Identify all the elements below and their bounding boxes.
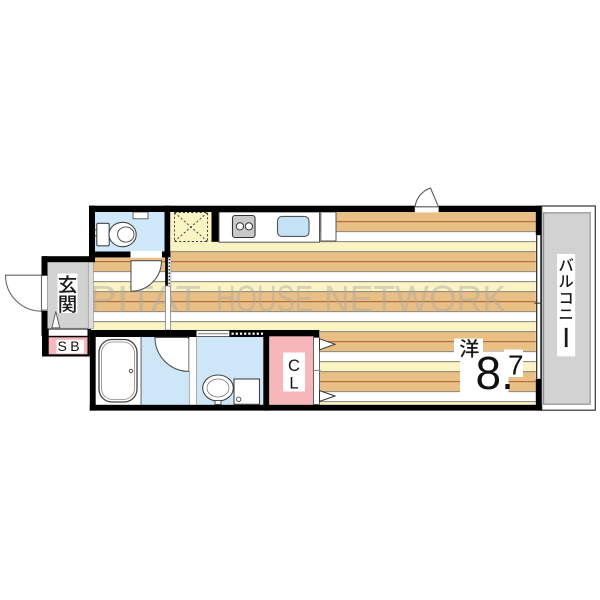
svg-text:NETWORK: NETWORK bbox=[324, 279, 506, 320]
svg-text:L: L bbox=[289, 375, 298, 393]
svg-text:C: C bbox=[288, 357, 300, 375]
svg-text:7: 7 bbox=[508, 350, 524, 381]
svg-text:HOUSE: HOUSE bbox=[216, 279, 313, 320]
svg-text:SB: SB bbox=[57, 338, 83, 354]
